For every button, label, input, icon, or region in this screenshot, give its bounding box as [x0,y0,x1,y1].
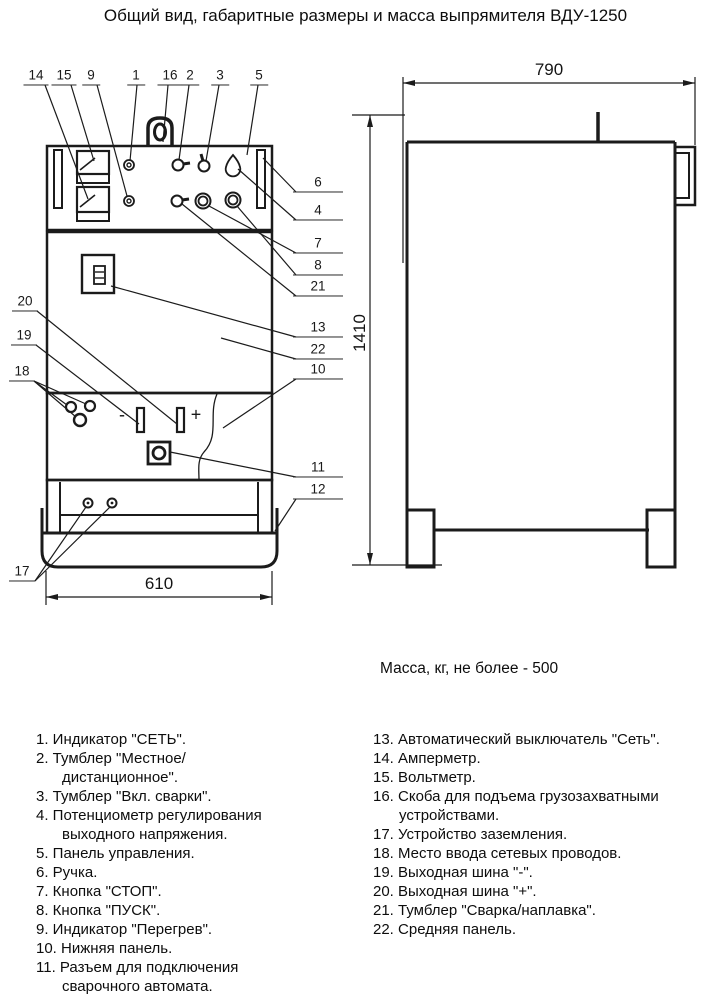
legend-item: 22. Средняя панель. [373,920,675,939]
callout-7: 7 [293,235,343,253]
middle-panel [47,232,272,393]
legend-item: 21. Тумблер "Сварка/наплавка". [373,901,675,920]
callout-10: 10 [293,361,343,379]
legend-item: 2. Тумблер "Местное/дистанционное". [36,749,298,787]
toggle-weld-surfacing [172,196,183,207]
legend-item: 15. Вольтметр. [373,768,675,787]
legend-item: 1. Индикатор "СЕТЬ". [36,730,298,749]
toggle-weld-surfacing-lever [182,199,189,200]
indicator-net [124,160,134,170]
legend-item: 10. Нижняя панель. [36,939,298,958]
legend-item: 6. Ручка. [36,863,298,882]
legend-item: 5. Панель управления. [36,844,298,863]
indicator-overheat [124,196,134,206]
legend-left-column: 1. Индикатор "СЕТЬ".2. Тумблер "Местное/… [36,730,298,998]
connector-pin [153,447,165,459]
callout-20: 20 [12,293,38,311]
voltmeter [77,151,109,174]
toggle-weld-on-lever [201,154,203,161]
callout-18: 18 [9,363,35,381]
mass-note: Масса, кг, не более - 500 [380,660,558,678]
toggle-local-remote-lever [183,163,190,164]
handle-side [675,147,695,205]
handle-slot-left [54,150,62,208]
callout-4: 4 [293,202,343,220]
cable-entry-hole [74,414,86,426]
indicator-overheat-center [127,199,131,203]
legend-right-column: 13. Автоматический выключатель "Сеть".14… [373,730,675,939]
callout-1: 1 [127,67,145,85]
lower-panel [47,393,272,480]
button-stop-inner [199,197,208,206]
legend-item: 9. Индикатор "Перегрев". [36,920,298,939]
callout-19: 19 [11,327,37,345]
ground-terminal-dot [87,502,90,505]
legend-item: 19. Выходная шина "-". [373,863,675,882]
dimension-790 [403,77,695,263]
callout-11: 11 [293,459,343,477]
callout-3: 3 [211,67,229,85]
indicator-net-center [127,163,131,167]
legend-item: 13. Автоматический выключатель "Сеть". [373,730,675,749]
cable-entry-hole [85,401,95,411]
minus-bus-bar [137,408,144,432]
callout--: - [117,404,127,425]
legend-item: 3. Тумблер "Вкл. сварки". [36,787,298,806]
toggle-weld-on [199,161,210,172]
callout-13: 13 [293,319,343,337]
legend-item: 18. Место ввода сетевых проводов. [373,844,675,863]
legend-item: 16. Скоба для подъема грузозахватными ус… [373,787,675,825]
legend-item: 4. Потенциометр регулирования выходного … [36,806,298,844]
callout-+: + [189,404,204,425]
toggle-local-remote [173,160,184,171]
foot-left [407,510,434,567]
front-view [34,85,296,605]
side-view [352,77,695,567]
callout-15: 15 [51,67,76,85]
ammeter [77,187,109,212]
callout-2: 2 [181,67,199,85]
callout-17: 17 [9,563,35,581]
callout-22: 22 [293,341,343,359]
callout-12: 12 [293,481,343,499]
dim-label-790: 790 [535,60,563,80]
support-base [42,508,277,567]
callout-5: 5 [250,67,268,85]
ground-terminal-dot [111,502,114,505]
legend-item: 17. Устройство заземления. [373,825,675,844]
callout-21: 21 [293,278,343,296]
lifting-eye [148,118,172,146]
plus-bus-bar [177,408,184,432]
legend-item: 20. Выходная шина "+". [373,882,675,901]
callout-6: 6 [293,174,343,192]
callout-14: 14 [23,67,48,85]
connector-socket [148,442,170,464]
circuit-breaker [82,255,114,293]
handle-side-inner [675,153,689,198]
ammeter-scale [77,212,109,221]
potentiometer-knob [226,155,241,176]
foot-right [647,510,675,567]
callout-9: 9 [82,67,100,85]
callout-16: 16 [157,67,182,85]
page: Общий вид, габаритные размеры и масса вы… [0,0,705,998]
button-start-inner [229,196,238,205]
callout-8: 8 [293,257,343,275]
ground-band [47,480,272,533]
dim-label-610: 610 [145,574,173,594]
legend-item: 7. Кнопка "СТОП". [36,882,298,901]
legend-item: 14. Амперметр. [373,749,675,768]
dim-label-1410: 1410 [350,314,370,352]
legend-item: 11. Разъем для подключения сварочного ав… [36,958,298,996]
legend-item: 8. Кнопка "ПУСК". [36,901,298,920]
voltmeter-needle [80,158,95,170]
circuit-breaker-switch [94,266,105,284]
